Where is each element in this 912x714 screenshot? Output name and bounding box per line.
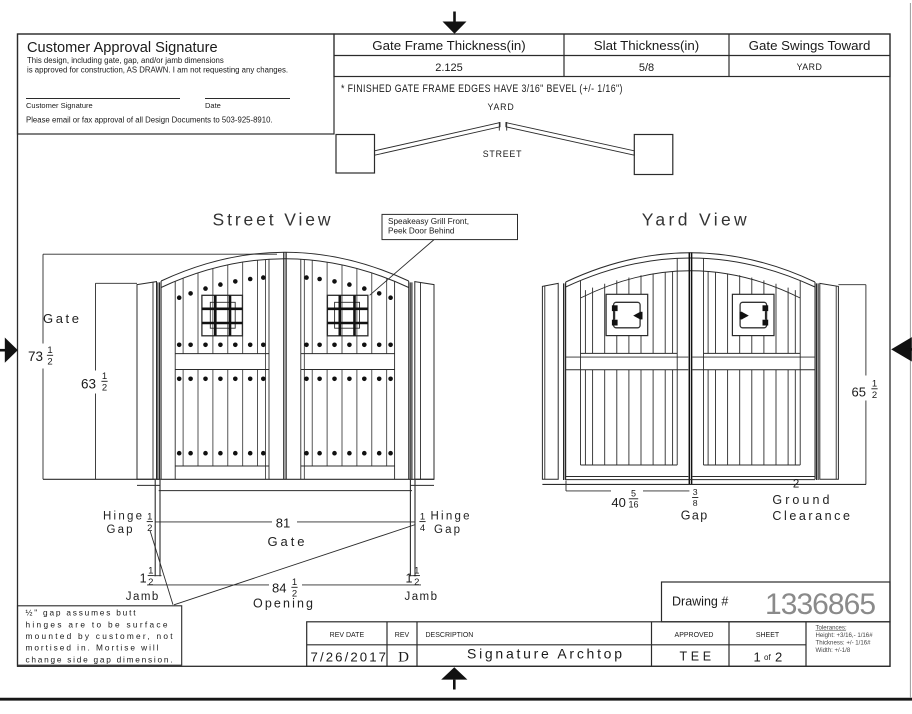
svg-text:2: 2 <box>102 383 107 394</box>
svg-text:1: 1 <box>406 572 413 586</box>
svg-text:mortised in. Mortise will: mortised in. Mortise will <box>26 643 159 653</box>
svg-text:of: of <box>764 653 771 662</box>
svg-text:STREET: STREET <box>483 149 523 159</box>
svg-text:change side gap dimension.: change side gap dimension. <box>26 654 173 664</box>
svg-text:Opening: Opening <box>253 597 313 611</box>
svg-text:SHEET: SHEET <box>756 632 780 639</box>
svg-text:Please email or fax approval o: Please email or fax approval of all Desi… <box>26 116 273 125</box>
svg-text:2: 2 <box>148 577 153 588</box>
svg-text:APPROVED: APPROVED <box>675 632 714 639</box>
svg-text:2: 2 <box>414 577 419 588</box>
svg-text:Hinge: Hinge <box>431 511 470 523</box>
svg-text:1: 1 <box>147 511 152 522</box>
svg-text:Gate Swings Toward: Gate Swings Toward <box>749 38 871 53</box>
svg-text:84: 84 <box>272 581 286 596</box>
svg-text:1: 1 <box>420 511 425 522</box>
svg-text:3: 3 <box>693 487 698 497</box>
svg-text:7/26/2017: 7/26/2017 <box>311 650 387 665</box>
svg-text:Hinge: Hinge <box>103 511 142 523</box>
svg-text:This design, including gate, g: This design, including gate, gap, and/or… <box>27 56 224 65</box>
svg-text:Street View: Street View <box>213 210 331 230</box>
svg-text:Peek Door Behind: Peek Door Behind <box>388 227 455 236</box>
svg-text:8: 8 <box>693 498 698 508</box>
svg-text:Yard View: Yard View <box>642 210 747 230</box>
svg-text:1: 1 <box>148 565 153 576</box>
svg-text:1: 1 <box>102 371 107 382</box>
svg-text:73: 73 <box>28 349 43 364</box>
svg-text:1: 1 <box>872 379 877 390</box>
svg-text:Jamb: Jamb <box>126 591 159 603</box>
svg-text:Gate Frame Thickness(in): Gate Frame Thickness(in) <box>372 38 525 53</box>
svg-text:4: 4 <box>420 523 425 534</box>
svg-text:Clearance: Clearance <box>772 509 850 523</box>
svg-text:63: 63 <box>81 377 96 392</box>
svg-text:hinges are to be surface: hinges are to be surface <box>26 619 168 629</box>
svg-text:Drawing #: Drawing # <box>672 595 728 609</box>
svg-text:Ground: Ground <box>772 493 829 507</box>
svg-text:2: 2 <box>793 479 799 491</box>
svg-text:1336865: 1336865 <box>765 588 876 621</box>
svg-text:Height: +3/16,- 1/16#: Height: +3/16,- 1/16# <box>816 632 874 639</box>
svg-text:81: 81 <box>276 516 290 531</box>
svg-text:DESCRIPTION: DESCRIPTION <box>426 632 474 639</box>
svg-text:½" gap assumes butt: ½" gap assumes butt <box>26 608 137 618</box>
svg-text:is approved for construction,: is approved for construction, AS DRAWN. … <box>27 66 288 75</box>
svg-text:40: 40 <box>611 495 625 510</box>
svg-text:TEE: TEE <box>680 650 712 664</box>
svg-text:Gap: Gap <box>681 509 708 523</box>
svg-text:Gate: Gate <box>268 534 305 549</box>
svg-text:16: 16 <box>628 500 638 510</box>
svg-text:REV: REV <box>395 632 410 639</box>
svg-text:D: D <box>398 650 409 666</box>
svg-text:5/8: 5/8 <box>639 62 654 74</box>
svg-text:Speakeasy Grill Front,: Speakeasy Grill Front, <box>388 217 469 226</box>
svg-text:1: 1 <box>140 572 147 586</box>
svg-text:1: 1 <box>292 577 297 588</box>
svg-text:* FINISHED GATE FRAME EDGES HA: * FINISHED GATE FRAME EDGES HAVE 3/16" B… <box>341 83 623 95</box>
svg-text:5: 5 <box>631 489 636 499</box>
svg-text:Gate: Gate <box>43 311 79 326</box>
svg-text:YARD: YARD <box>488 102 515 112</box>
svg-text:2: 2 <box>147 523 152 534</box>
svg-text:2.125: 2.125 <box>435 62 463 74</box>
svg-text:1: 1 <box>47 345 52 356</box>
svg-text:REV DATE: REV DATE <box>330 632 365 639</box>
svg-text:Customer Signature: Customer Signature <box>26 101 93 110</box>
svg-text:Jamb: Jamb <box>405 591 438 603</box>
svg-text:mounted by customer, not: mounted by customer, not <box>26 631 174 641</box>
svg-text:65: 65 <box>852 385 866 400</box>
svg-text:Thickness: +/- 1/16#: Thickness: +/- 1/16# <box>816 640 872 647</box>
svg-text:Customer Approval Signature: Customer Approval Signature <box>27 40 218 56</box>
svg-text:Date: Date <box>205 101 221 110</box>
svg-text:1: 1 <box>414 565 419 576</box>
svg-text:2: 2 <box>47 357 52 368</box>
svg-text:Gap: Gap <box>107 524 133 536</box>
svg-text:2: 2 <box>872 390 877 401</box>
svg-text:YARD: YARD <box>797 62 823 72</box>
svg-text:Signature Archtop: Signature Archtop <box>467 646 622 662</box>
svg-text:2: 2 <box>775 650 782 665</box>
svg-text:Gap: Gap <box>434 524 460 536</box>
svg-text:Slat Thickness(in): Slat Thickness(in) <box>594 38 699 53</box>
svg-text:Width: +/-1/8: Width: +/-1/8 <box>816 647 851 654</box>
svg-text:1: 1 <box>754 650 761 665</box>
